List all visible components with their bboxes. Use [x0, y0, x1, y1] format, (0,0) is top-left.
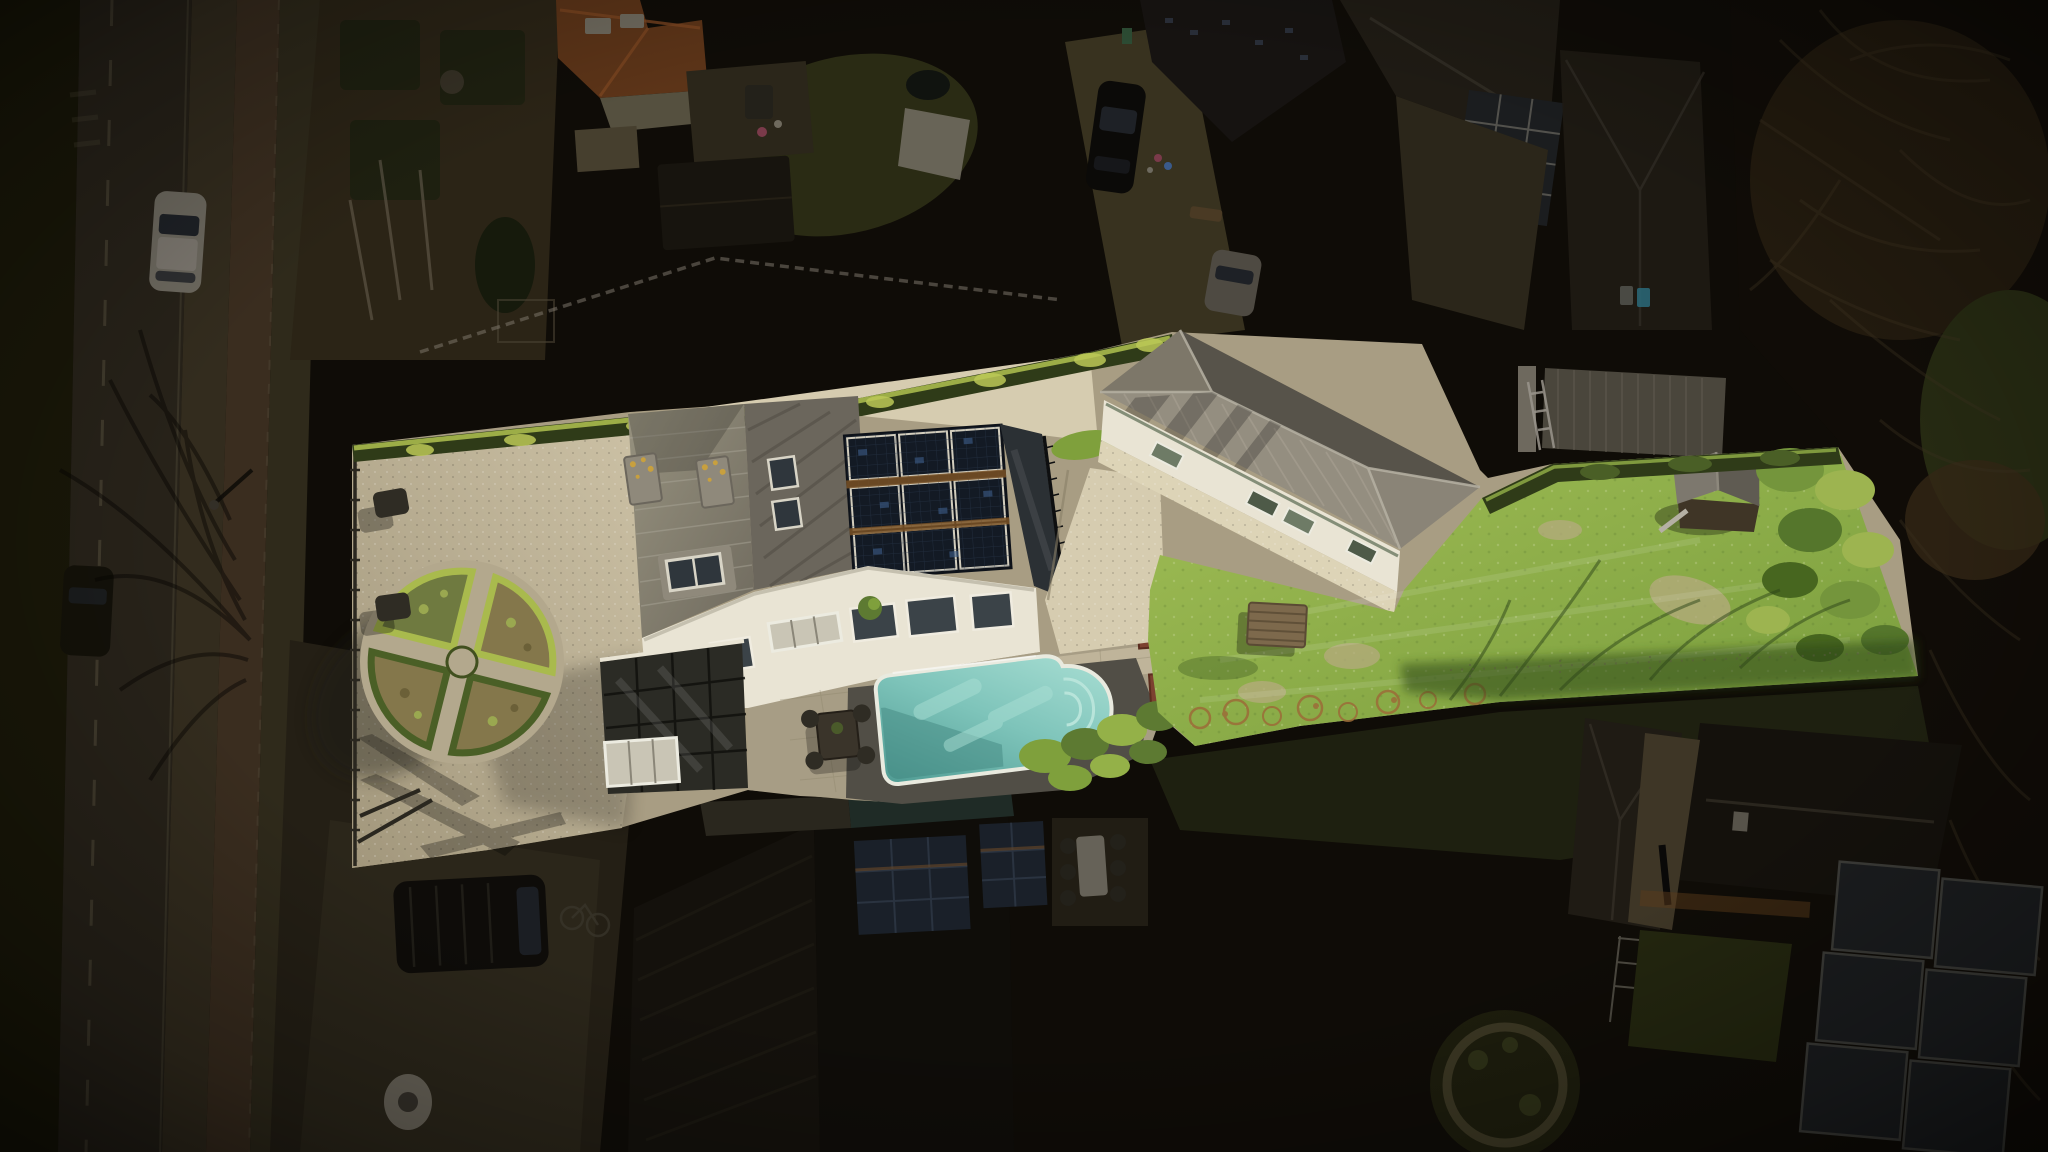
- vignette-overlay: [0, 0, 2048, 1152]
- aerial-photo: [0, 0, 2048, 1152]
